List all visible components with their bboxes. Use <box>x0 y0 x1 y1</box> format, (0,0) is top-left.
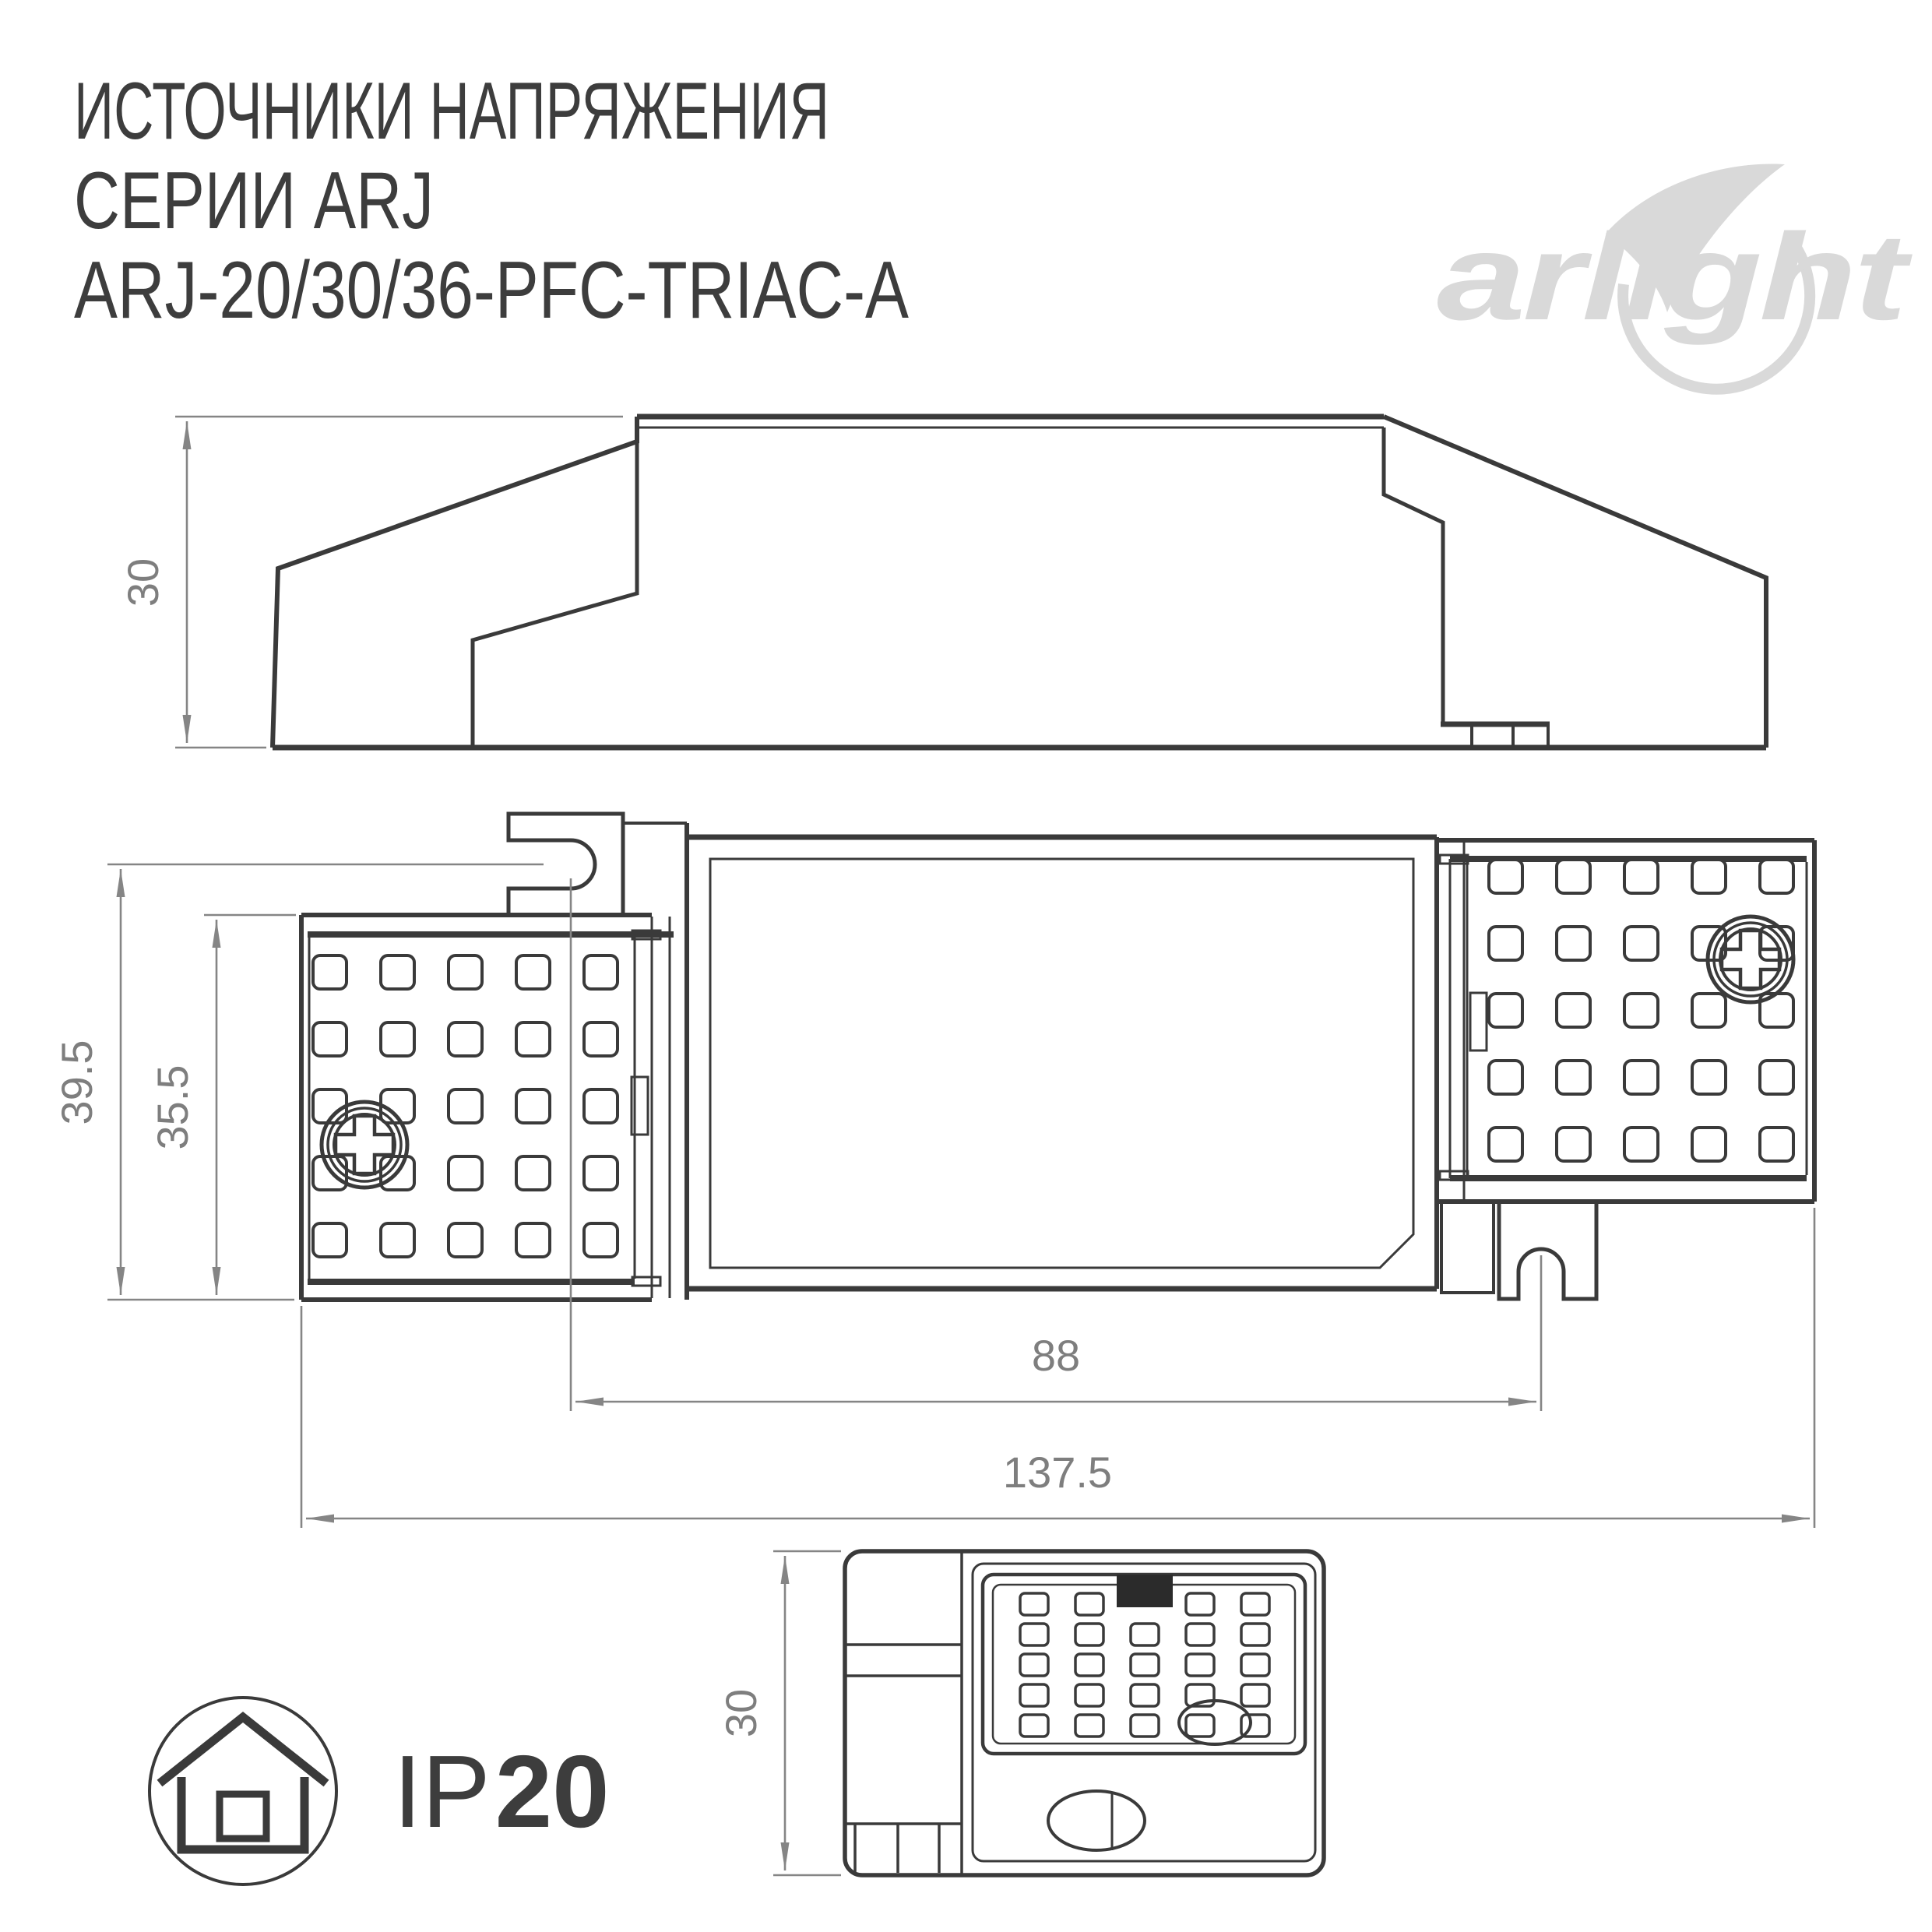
vent-hole <box>1075 1715 1103 1737</box>
vent-hole <box>1624 1128 1658 1161</box>
vent-hole <box>1131 1654 1159 1676</box>
vent-hole <box>1760 1061 1793 1094</box>
vent-hole <box>1020 1684 1048 1706</box>
vent-hole <box>1557 1061 1590 1094</box>
vent-hole <box>1624 1061 1658 1094</box>
screw-icon <box>322 1102 407 1188</box>
vent-hole <box>1489 994 1522 1027</box>
vent-grid-left <box>313 955 618 1257</box>
datasheet-page: ИСТОЧНИКИ НАПРЯЖЕНИЯ СЕРИИ ARJ ARJ-20/30… <box>0 0 1932 1932</box>
vent-hole <box>313 955 347 989</box>
vent-hole <box>1489 927 1522 960</box>
vent-hole <box>1692 860 1726 893</box>
vent-grid-right <box>1489 860 1793 1161</box>
vent-hole <box>449 1022 482 1056</box>
dimension-end-height: 30 <box>716 1551 841 1875</box>
vent-hole <box>584 1223 618 1257</box>
vent-hole <box>1075 1624 1103 1645</box>
vent-hole <box>1020 1715 1048 1737</box>
page-title-line-2: СЕРИИ ARJ <box>74 156 434 246</box>
vent-hole <box>516 1223 550 1257</box>
dimension-label-plan-inner: 35.5 <box>148 1065 197 1150</box>
vent-hole <box>516 1156 550 1190</box>
vent-hole <box>449 1089 482 1123</box>
dimension-label-plan-outer: 39.5 <box>52 1040 101 1125</box>
vent-hole <box>516 1089 550 1123</box>
knockout-oval <box>1048 1791 1145 1850</box>
vent-hole <box>1557 927 1590 960</box>
vent-hole <box>1760 1128 1793 1161</box>
dimension-label-side-height: 30 <box>118 558 167 607</box>
vent-hole <box>1241 1624 1269 1645</box>
vent-hole <box>516 955 550 989</box>
dimension-label-slot-pitch: 88 <box>1032 1331 1080 1380</box>
vent-hole <box>1186 1624 1214 1645</box>
vent-hole <box>1075 1654 1103 1676</box>
vent-hole <box>381 955 414 989</box>
dimension-label-end-height: 30 <box>716 1689 765 1737</box>
vent-hole <box>584 955 618 989</box>
title-block: ИСТОЧНИКИ НАПРЯЖЕНИЯ СЕРИИ ARJ ARJ-20/30… <box>74 66 910 336</box>
vent-hole <box>584 1156 618 1190</box>
right-terminal-block <box>1437 840 1814 1202</box>
page-title-line-1: ИСТОЧНИКИ НАПРЯЖЕНИЯ <box>74 66 829 157</box>
cover-tab <box>632 1277 660 1286</box>
mounting-tab-bottom <box>1441 1202 1596 1299</box>
vent-hole <box>516 1022 550 1056</box>
vent-hole <box>1692 1128 1726 1161</box>
vent-hole <box>1020 1593 1048 1615</box>
ip-rating-label: IP20 <box>393 1734 610 1849</box>
vent-hole <box>1186 1715 1214 1737</box>
end-view-drawing: 30 <box>716 1551 1324 1875</box>
vent-hole <box>1075 1593 1103 1615</box>
plan-view-drawing: 39.5 35.5 88 137.5 <box>52 814 1814 1528</box>
dimension-label-total-length: 137.5 <box>1003 1448 1112 1497</box>
arlight-logo: arlight <box>1437 164 1913 389</box>
vent-hole <box>313 1223 347 1257</box>
ip20-badge: IP20 <box>150 1698 610 1884</box>
dimension-drawing: ИСТОЧНИКИ НАПРЯЖЕНИЯ СЕРИИ ARJ ARJ-20/30… <box>0 0 1932 1932</box>
side-view-drawing: 30 <box>118 417 1766 748</box>
screw-icon <box>1708 917 1793 1002</box>
vent-hole <box>449 1156 482 1190</box>
left-terminal-block <box>301 915 674 1300</box>
vent-hole <box>381 1223 414 1257</box>
dimension-side-height: 30 <box>118 417 623 748</box>
vent-hole <box>1075 1684 1103 1706</box>
connector-block <box>1117 1575 1173 1607</box>
vent-hole <box>381 1022 414 1056</box>
vent-hole <box>1489 1128 1522 1161</box>
vent-hole <box>584 1022 618 1056</box>
vent-hole <box>1624 860 1658 893</box>
vent-hole <box>1624 927 1658 960</box>
vent-hole <box>1557 860 1590 893</box>
central-housing <box>670 823 1437 1300</box>
page-title-line-3: ARJ-20/30/36-PFC-TRIAC-A <box>74 245 910 336</box>
vent-hole <box>1489 1061 1522 1094</box>
vent-hole <box>1241 1684 1269 1706</box>
mounting-feet <box>1472 724 1548 748</box>
arlight-logo-text: arlight <box>1437 209 1913 346</box>
vent-hole <box>1489 860 1522 893</box>
dimension-plan-inner-height: 35.5 <box>148 915 296 1295</box>
vent-panel <box>983 1575 1305 1754</box>
vent-hole <box>1557 1128 1590 1161</box>
vent-hole <box>584 1089 618 1123</box>
vent-hole <box>1020 1624 1048 1645</box>
vent-hole <box>1186 1654 1214 1676</box>
vent-hole <box>313 1022 347 1056</box>
vent-hole <box>1692 994 1726 1027</box>
vent-hole <box>1131 1684 1159 1706</box>
house-icon <box>160 1717 326 1849</box>
cover-clip <box>1470 993 1487 1050</box>
vent-hole <box>1624 994 1658 1027</box>
vent-hole <box>1692 1061 1726 1094</box>
vent-hole <box>449 955 482 989</box>
vent-hole <box>449 1223 482 1257</box>
dimension-slot-pitch: 88 <box>571 878 1541 1411</box>
vent-hole <box>1760 860 1793 893</box>
vent-hole <box>1131 1624 1159 1645</box>
vent-hole <box>1241 1593 1269 1615</box>
vent-hole <box>1020 1654 1048 1676</box>
vent-hole <box>1186 1593 1214 1615</box>
vent-hole <box>1241 1654 1269 1676</box>
vent-hole <box>1131 1715 1159 1737</box>
vent-hole <box>1557 994 1590 1027</box>
vent-grid-end <box>1020 1593 1269 1737</box>
